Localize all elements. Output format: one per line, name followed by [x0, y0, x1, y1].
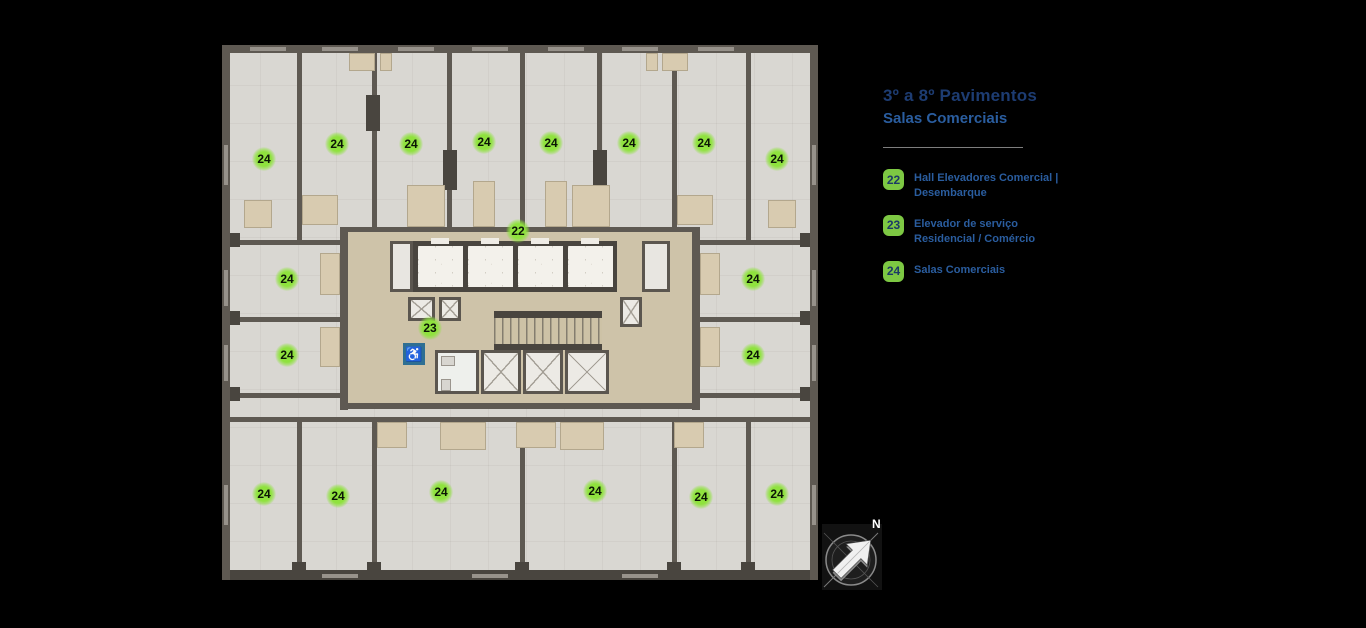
- elevator-shaft: [418, 246, 463, 287]
- slit: [224, 485, 228, 525]
- slit: [322, 574, 358, 578]
- slit: [812, 145, 816, 185]
- legend-item-23: 23 Elevador de serviço Residencial / Com…: [883, 215, 1153, 248]
- slit: [698, 47, 734, 51]
- wall: [520, 53, 525, 227]
- legend-badge-24: 24: [883, 261, 904, 282]
- wall: [340, 403, 700, 409]
- niche: [560, 422, 604, 450]
- legend-badge-22: 22: [883, 169, 904, 190]
- div: Desembarque: [914, 186, 1058, 201]
- shaft-room: [481, 350, 521, 394]
- grayroom: [390, 241, 413, 292]
- slit: [322, 47, 358, 51]
- compass-north-label: N: [872, 517, 881, 531]
- niche: [302, 195, 338, 225]
- niche: [440, 422, 486, 450]
- elevator-shaft: [468, 246, 513, 287]
- slit: [472, 47, 508, 51]
- slit: [812, 270, 816, 306]
- wall: [447, 53, 452, 227]
- slit: [224, 145, 228, 185]
- div: Hall Elevadores Comercial |: [914, 171, 1058, 186]
- shaft-room: [620, 297, 642, 327]
- doorgap: [581, 238, 599, 244]
- legend-label-23: Elevador de serviço Residencial / Comérc…: [914, 215, 1035, 248]
- wall: [746, 422, 751, 572]
- niche: [244, 200, 272, 228]
- div: Residencial / Comércio: [914, 232, 1035, 247]
- wall-dark: [800, 387, 810, 401]
- niche: [377, 422, 407, 448]
- legend-label-24: Salas Comerciais: [914, 261, 1005, 278]
- wall-dark: [800, 311, 810, 325]
- slit: [250, 47, 286, 51]
- wall: [230, 317, 340, 322]
- slit: [548, 47, 584, 51]
- wall: [230, 393, 340, 398]
- shaft-room: [439, 297, 461, 321]
- wall: [700, 393, 810, 398]
- wall-dark: [741, 562, 755, 572]
- wall-dark: [366, 95, 380, 131]
- niche: [646, 53, 658, 71]
- niche: [674, 422, 704, 448]
- fixture: [441, 379, 451, 391]
- stage: ♿ 24242424242424242224242324242424242424…: [0, 0, 1366, 628]
- doorgap: [531, 238, 549, 244]
- wall-dark: [515, 562, 529, 572]
- elevator-shaft: [568, 246, 613, 287]
- slit: [398, 47, 434, 51]
- wall: [692, 240, 810, 245]
- page-title: 3º a 8º Pavimentos: [883, 86, 1153, 106]
- niche: [677, 195, 713, 225]
- shaft-room: [565, 350, 609, 394]
- legend-divider: [883, 147, 1023, 148]
- niche: [545, 181, 567, 227]
- slit: [224, 270, 228, 306]
- niche: [700, 327, 720, 367]
- niche: [516, 422, 556, 448]
- div: Salas Comerciais: [914, 263, 1005, 278]
- legend-label-22: Hall Elevadores Comercial | Desembarque: [914, 169, 1058, 202]
- slit: [812, 345, 816, 381]
- shaft-room: [408, 297, 435, 321]
- accessible-wc: ♿: [403, 343, 425, 365]
- stair-rail: [494, 311, 602, 318]
- niche: [473, 181, 495, 227]
- wall: [230, 240, 340, 245]
- legend-badge-23: 23: [883, 215, 904, 236]
- niche: [768, 200, 796, 228]
- wall: [297, 422, 302, 572]
- page-subtitle: Salas Comerciais: [883, 110, 1153, 127]
- slit: [472, 574, 508, 578]
- wall-dark: [593, 150, 607, 190]
- niche: [662, 53, 688, 71]
- legend-item-22: 22 Hall Elevadores Comercial | Desembarq…: [883, 169, 1153, 202]
- staircase: [494, 318, 602, 344]
- elevator-shaft: [518, 246, 563, 287]
- wall-dark: [443, 150, 457, 190]
- wall: [700, 317, 810, 322]
- div: Elevador de serviço: [914, 217, 1035, 232]
- doorgap: [481, 238, 499, 244]
- wall-dark: [292, 562, 306, 572]
- legend: 3º a 8º Pavimentos Salas Comerciais 22 H…: [883, 86, 1153, 295]
- niche: [572, 185, 610, 227]
- niche: [320, 253, 340, 295]
- compass-svg: N: [816, 510, 890, 600]
- wall-dark: [667, 562, 681, 572]
- doorgap: [431, 238, 449, 244]
- wheelchair-icon: ♿: [405, 347, 422, 361]
- wall: [340, 227, 348, 410]
- niche: [320, 327, 340, 367]
- shaft-room: [523, 350, 563, 394]
- slit: [622, 47, 658, 51]
- niche: [700, 253, 720, 295]
- slit: [224, 345, 228, 381]
- service-wc-room: [435, 350, 479, 394]
- wall: [372, 53, 377, 227]
- wall-dark: [230, 233, 240, 247]
- wall-dark: [800, 233, 810, 247]
- wall: [746, 53, 751, 240]
- niche: [349, 53, 375, 71]
- wall-dark: [230, 311, 240, 325]
- wall-dark: [367, 562, 381, 572]
- niche: [407, 185, 445, 227]
- slit: [622, 574, 658, 578]
- compass-rose: N: [816, 510, 890, 600]
- legend-item-24: 24 Salas Comerciais: [883, 261, 1153, 282]
- fixture: [441, 356, 455, 366]
- wall: [692, 227, 700, 410]
- floor-plan: ♿: [222, 45, 818, 580]
- niche: [380, 53, 392, 71]
- grayroom: [642, 241, 670, 292]
- wall-dark: [230, 387, 240, 401]
